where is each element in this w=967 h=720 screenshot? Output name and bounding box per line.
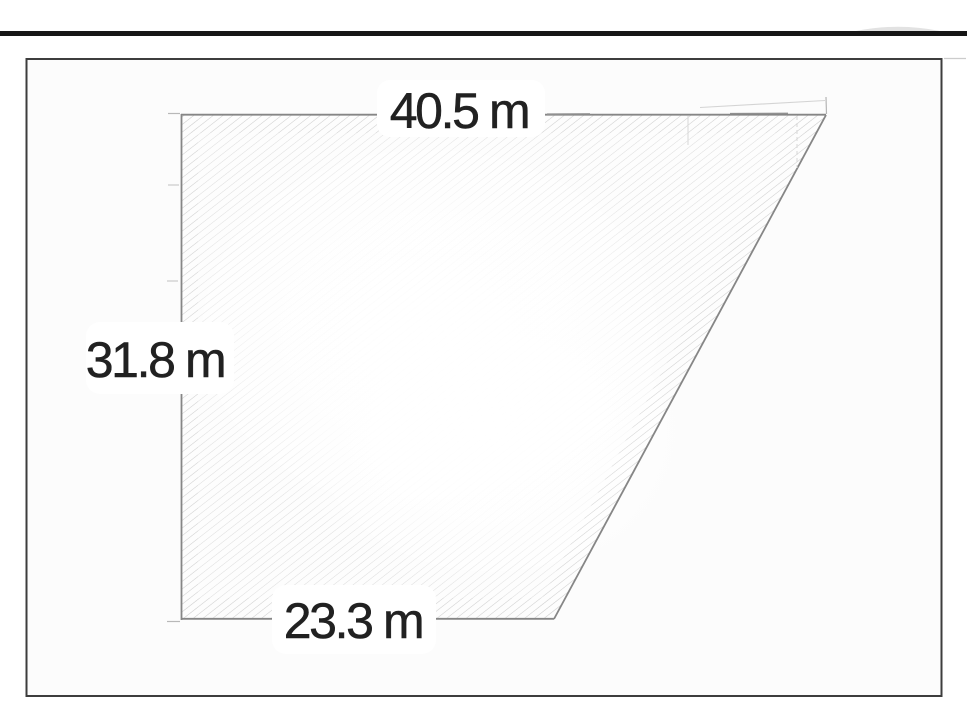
svg-text:31.8 m: 31.8 m bbox=[86, 332, 224, 388]
svg-text:40.5 m: 40.5 m bbox=[390, 83, 528, 139]
svg-text:23.3 m: 23.3 m bbox=[284, 593, 422, 649]
